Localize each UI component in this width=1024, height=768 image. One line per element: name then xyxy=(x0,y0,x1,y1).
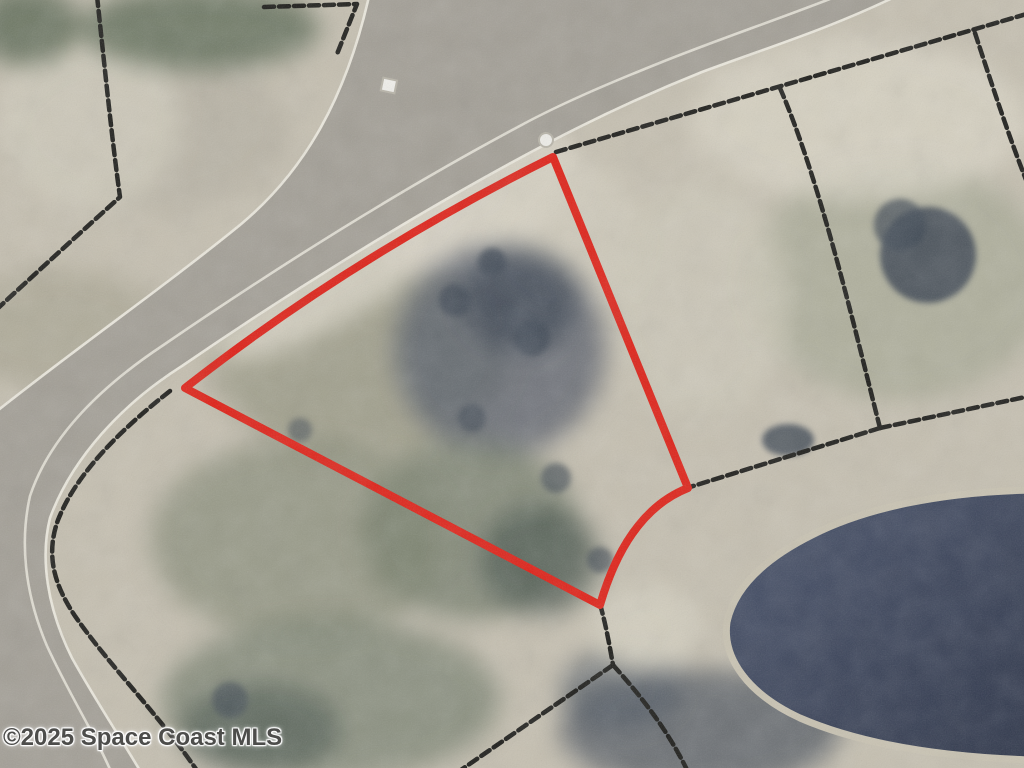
aerial-photo-canvas xyxy=(0,0,1024,768)
mls-watermark: ©2025 Space Coast MLS xyxy=(3,724,282,752)
grain-overlay-fine xyxy=(0,0,1024,768)
aerial-photo: ©2025 Space Coast MLS xyxy=(0,0,1024,768)
